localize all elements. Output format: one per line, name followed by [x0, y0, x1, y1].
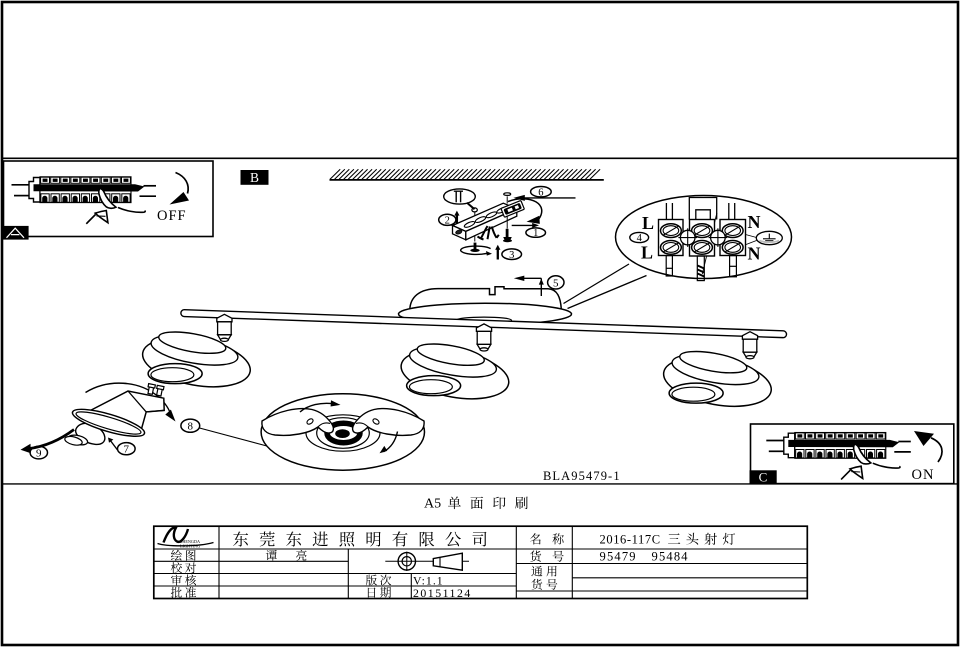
svg-text:95484: 95484: [652, 549, 689, 563]
svg-text:20151124: 20151124: [413, 586, 472, 600]
svg-text:A5: A5: [424, 497, 441, 512]
svg-text:2: 2: [445, 216, 450, 227]
svg-text:N: N: [748, 244, 761, 264]
svg-text:C: C: [759, 470, 768, 485]
svg-text:LIGHTING: LIGHTING: [180, 543, 200, 548]
svg-text:5: 5: [553, 277, 559, 289]
svg-text:7: 7: [124, 444, 130, 456]
svg-text:9: 9: [36, 448, 42, 460]
svg-text:3: 3: [509, 250, 514, 261]
svg-text:L: L: [641, 243, 653, 263]
svg-text:BLA95479-1: BLA95479-1: [543, 469, 621, 483]
svg-text:8: 8: [188, 421, 194, 433]
svg-text:OFF: OFF: [157, 208, 187, 224]
svg-text:1: 1: [533, 228, 538, 239]
svg-text:ON: ON: [912, 467, 935, 483]
svg-text:6: 6: [538, 187, 543, 198]
svg-text:95479: 95479: [600, 549, 637, 563]
svg-text:N: N: [748, 212, 761, 232]
svg-text:L: L: [642, 213, 654, 233]
svg-text:4: 4: [637, 233, 643, 244]
svg-text:2016-117C: 2016-117C: [600, 533, 661, 547]
svg-text:B: B: [250, 170, 259, 185]
